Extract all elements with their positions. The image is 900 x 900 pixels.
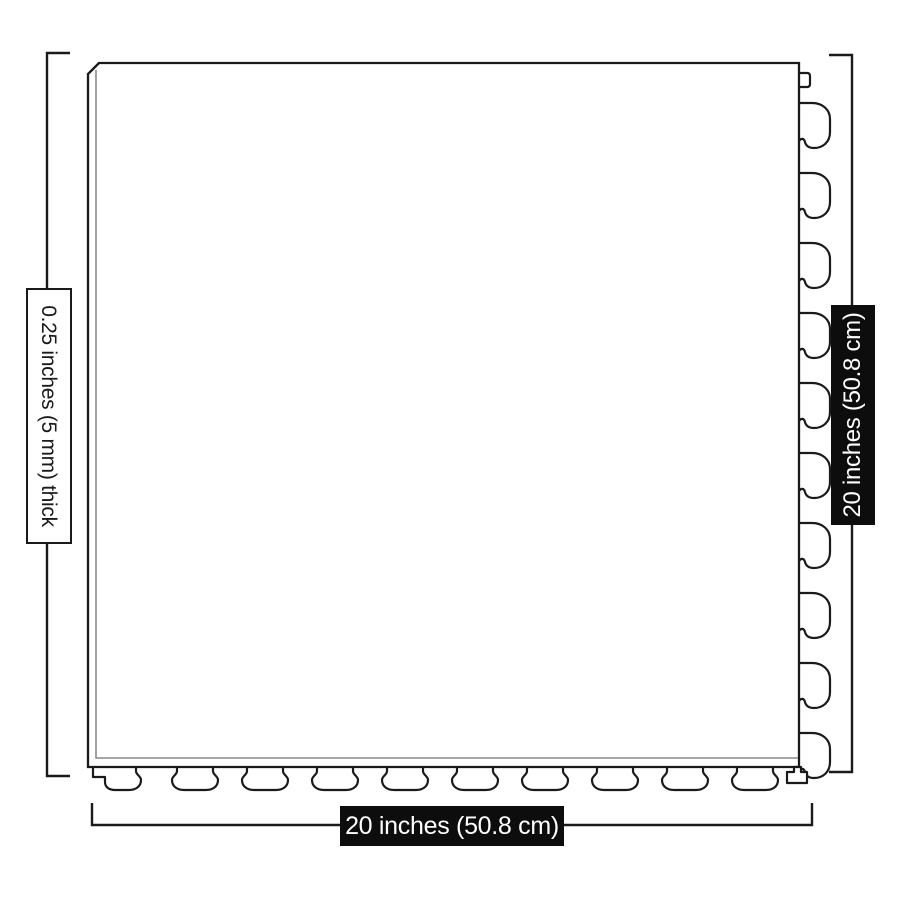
height-label: 20 inches (50.8 cm) bbox=[831, 305, 875, 525]
width-label-text: 20 inches (50.8 cm) bbox=[345, 814, 559, 839]
top-right-notch bbox=[799, 73, 810, 87]
right-edge-loops bbox=[799, 73, 830, 778]
height-label-text: 20 inches (50.8 cm) bbox=[841, 312, 865, 517]
thickness-label: 0.25 inches (5 mm) thick bbox=[26, 288, 72, 544]
width-label: 20 inches (50.8 cm) bbox=[340, 806, 564, 846]
tile-drawing bbox=[0, 0, 900, 900]
thickness-label-text: 0.25 inches (5 mm) thick bbox=[39, 305, 60, 527]
tile-dimension-diagram: 0.25 inches (5 mm) thick 20 inches (50.8… bbox=[0, 0, 900, 900]
bottom-left-corner-tab bbox=[93, 767, 141, 790]
bottom-edge-tabs bbox=[93, 767, 778, 790]
tile-outline bbox=[88, 63, 799, 767]
